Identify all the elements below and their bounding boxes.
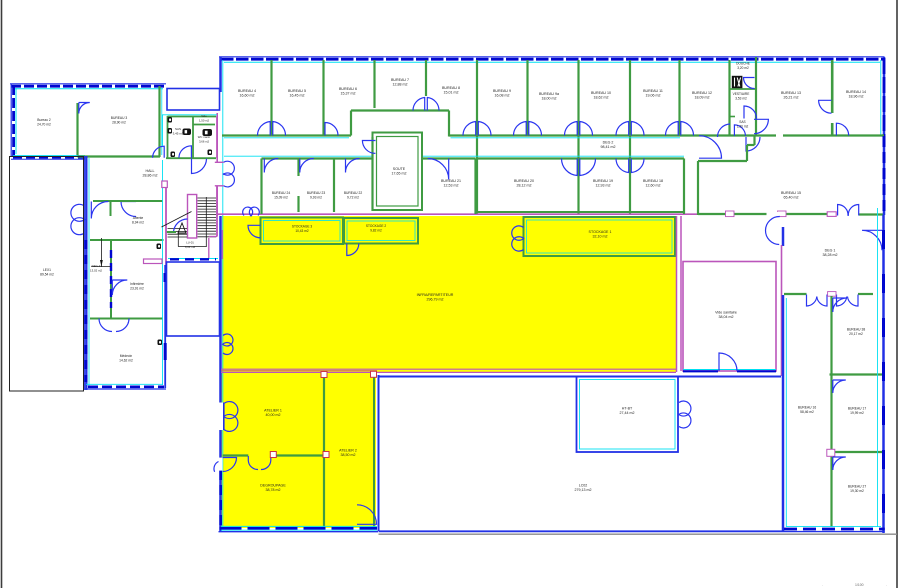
svg-text:38,28 m2: 38,28 m2: [823, 253, 838, 257]
svg-text:BUREAU 6: BUREAU 6: [339, 87, 357, 91]
svg-text:12,88 m2: 12,88 m2: [393, 83, 408, 87]
svg-text:1,50 m2: 1,50 m2: [199, 118, 210, 122]
svg-text:BUREAU 15: BUREAU 15: [781, 191, 801, 195]
svg-text:DEGROUPAGE: DEGROUPAGE: [260, 484, 286, 488]
svg-text:BUREAU 3: BUREAU 3: [111, 116, 128, 120]
svg-text:15,09 m2: 15,09 m2: [274, 196, 288, 200]
svg-text:27,44 m2: 27,44 m2: [620, 411, 635, 415]
svg-text:BUREAU 23: BUREAU 23: [307, 191, 325, 195]
svg-text:18,09 m2: 18,09 m2: [695, 96, 710, 100]
svg-text:12,53 m2: 12,53 m2: [444, 184, 459, 188]
svg-text:296,79 m2: 296,79 m2: [427, 298, 444, 302]
svg-text:STOCKAGE 3: STOCKAGE 3: [292, 225, 313, 229]
svg-text:28,12 m2: 28,12 m2: [517, 184, 532, 188]
svg-text:STOCKAGE 1: STOCKAGE 1: [589, 230, 612, 234]
svg-text:BUREAU 24: BUREAU 24: [272, 191, 290, 195]
svg-text:BUREAU 17: BUREAU 17: [848, 407, 866, 411]
svg-text:Attente: Attente: [133, 216, 144, 220]
svg-text:279,13 m2: 279,13 m2: [575, 488, 592, 492]
svg-text:17,65 m2: 17,65 m2: [392, 172, 407, 176]
svg-text:3,45 m2: 3,45 m2: [173, 132, 184, 136]
svg-text:16,60 m2: 16,60 m2: [240, 94, 255, 98]
svg-text:BUREAU 16: BUREAU 16: [798, 406, 816, 410]
svg-text:ATELIER 2: ATELIER 2: [339, 449, 357, 453]
svg-text:15,37 m2: 15,37 m2: [341, 92, 356, 96]
svg-text:.: .: [822, 583, 823, 587]
svg-text:98,41 m2: 98,41 m2: [601, 145, 616, 149]
svg-text:58,46 m2: 58,46 m2: [800, 410, 814, 414]
svg-text:DEG 2: DEG 2: [603, 141, 614, 145]
svg-text:.: .: [886, 583, 887, 587]
svg-text:65,40 m2: 65,40 m2: [784, 196, 799, 200]
svg-text:BUREAU 4: BUREAU 4: [238, 89, 256, 93]
svg-text:16,45 m2: 16,45 m2: [290, 94, 305, 98]
svg-text:Médecin: Médecin: [120, 354, 133, 358]
svg-text:HT-BT: HT-BT: [622, 407, 633, 411]
svg-text:12,93 m2: 12,93 m2: [596, 184, 611, 188]
svg-text:89,54 m2: 89,54 m2: [40, 273, 54, 277]
svg-text:BUREAU 9: BUREAU 9: [493, 89, 511, 93]
svg-text:18,62 m2: 18,62 m2: [594, 96, 609, 100]
svg-text:DEG 3: DEG 3: [92, 264, 101, 268]
svg-text:SAS: SAS: [739, 120, 745, 124]
svg-text:BUREAU 11: BUREAU 11: [643, 89, 663, 93]
svg-text:38,78 m2: 38,78 m2: [266, 488, 281, 492]
svg-text:Vide: Vide: [201, 114, 207, 118]
svg-text:3,61 m2: 3,61 m2: [185, 245, 196, 249]
svg-text:BUREAU 20: BUREAU 20: [514, 179, 534, 183]
svg-text:13,02 m2: 13,02 m2: [90, 269, 102, 273]
svg-text:8,94 m2: 8,94 m2: [132, 221, 144, 225]
svg-text:28,90 m2: 28,90 m2: [112, 121, 126, 125]
svg-text:BUREAU 5: BUREAU 5: [288, 89, 306, 93]
svg-text:BUREAU 14: BUREAU 14: [846, 90, 866, 94]
svg-text:12,60 m2: 12,60 m2: [646, 184, 661, 188]
svg-text:BUREAU 12: BUREAU 12: [692, 91, 712, 95]
svg-text:28,86 m2: 28,86 m2: [143, 174, 158, 178]
svg-text:1,30 m2: 1,30 m2: [737, 125, 749, 129]
svg-text:LU-01: LU-01: [186, 241, 194, 245]
svg-text:26,21 m2: 26,21 m2: [784, 96, 799, 100]
svg-text:BUREAU 8: BUREAU 8: [442, 86, 460, 90]
svg-text:LEX1: LEX1: [43, 268, 51, 272]
svg-text:STOCKAGE 2: STOCKAGE 2: [366, 224, 387, 228]
svg-text:1/100: 1/100: [855, 583, 864, 587]
svg-text:SOUTE: SOUTE: [393, 167, 406, 171]
svg-text:18,00 m2: 18,00 m2: [542, 97, 557, 101]
svg-text:24,70 m2: 24,70 m2: [37, 123, 51, 127]
svg-text:9,72 m2: 9,72 m2: [347, 196, 359, 200]
svg-text:19,06 m2: 19,06 m2: [646, 94, 661, 98]
svg-text:19,30 m2: 19,30 m2: [850, 489, 864, 493]
svg-text:BUREAU 19: BUREAU 19: [593, 179, 613, 183]
svg-text:SAS: SAS: [175, 127, 181, 131]
svg-text:32,10 m2: 32,10 m2: [593, 235, 608, 239]
svg-text:3,66 m2: 3,66 m2: [199, 140, 210, 144]
svg-text:38,50 m2: 38,50 m2: [341, 453, 356, 457]
svg-text:BUREAU 22: BUREAU 22: [344, 191, 362, 195]
svg-text:VESTIAIRE: VESTIAIRE: [733, 92, 750, 96]
svg-text:15,01 m2: 15,01 m2: [444, 91, 459, 95]
svg-text:Vide sanitaire: Vide sanitaire: [715, 311, 737, 315]
svg-text:BUREAU 7: BUREAU 7: [391, 78, 409, 82]
svg-text:10,43 m2: 10,43 m2: [295, 229, 309, 233]
svg-text:DEG 1: DEG 1: [825, 249, 836, 253]
svg-text:BUREAU 10: BUREAU 10: [591, 91, 611, 95]
svg-text:38,04 m2: 38,04 m2: [719, 315, 734, 319]
svg-text:BUREAU 18: BUREAU 18: [643, 179, 663, 183]
svg-text:16,08 m2: 16,08 m2: [495, 94, 510, 98]
svg-text:BUREAU 21: BUREAU 21: [441, 179, 461, 183]
svg-text:BUREAU 27: BUREAU 27: [848, 485, 866, 489]
svg-text:23,91 m2: 23,91 m2: [130, 287, 144, 291]
svg-text:9,82 m2: 9,82 m2: [370, 229, 382, 233]
svg-text:3,53 m2: 3,53 m2: [735, 97, 747, 101]
svg-text:Infirmière: Infirmière: [130, 282, 144, 286]
svg-text:40,00 m2: 40,00 m2: [266, 413, 281, 417]
svg-text:14,62 m2: 14,62 m2: [119, 359, 133, 363]
svg-text:20,17 m2: 20,17 m2: [849, 332, 863, 336]
svg-text:9,93 m2: 9,93 m2: [310, 196, 322, 200]
svg-text:Bureau 2: Bureau 2: [37, 118, 51, 122]
svg-text:INFRA/REPARTITEUR: INFRA/REPARTITEUR: [417, 293, 454, 297]
svg-text:ATELIER 1: ATELIER 1: [264, 409, 282, 413]
svg-text:BUREAU 9a: BUREAU 9a: [539, 92, 559, 96]
svg-text:BUREAU 13: BUREAU 13: [781, 91, 801, 95]
svg-text:DOUCHE: DOUCHE: [736, 62, 750, 66]
svg-text:19,99 m2: 19,99 m2: [850, 411, 864, 415]
svg-text:3,20 m2: 3,20 m2: [737, 66, 749, 70]
svg-text:18,96 m2: 18,96 m2: [849, 95, 864, 99]
svg-text:HALL: HALL: [146, 169, 155, 173]
svg-text:LC02: LC02: [579, 484, 588, 488]
svg-text:BUREAU 38: BUREAU 38: [847, 328, 865, 332]
